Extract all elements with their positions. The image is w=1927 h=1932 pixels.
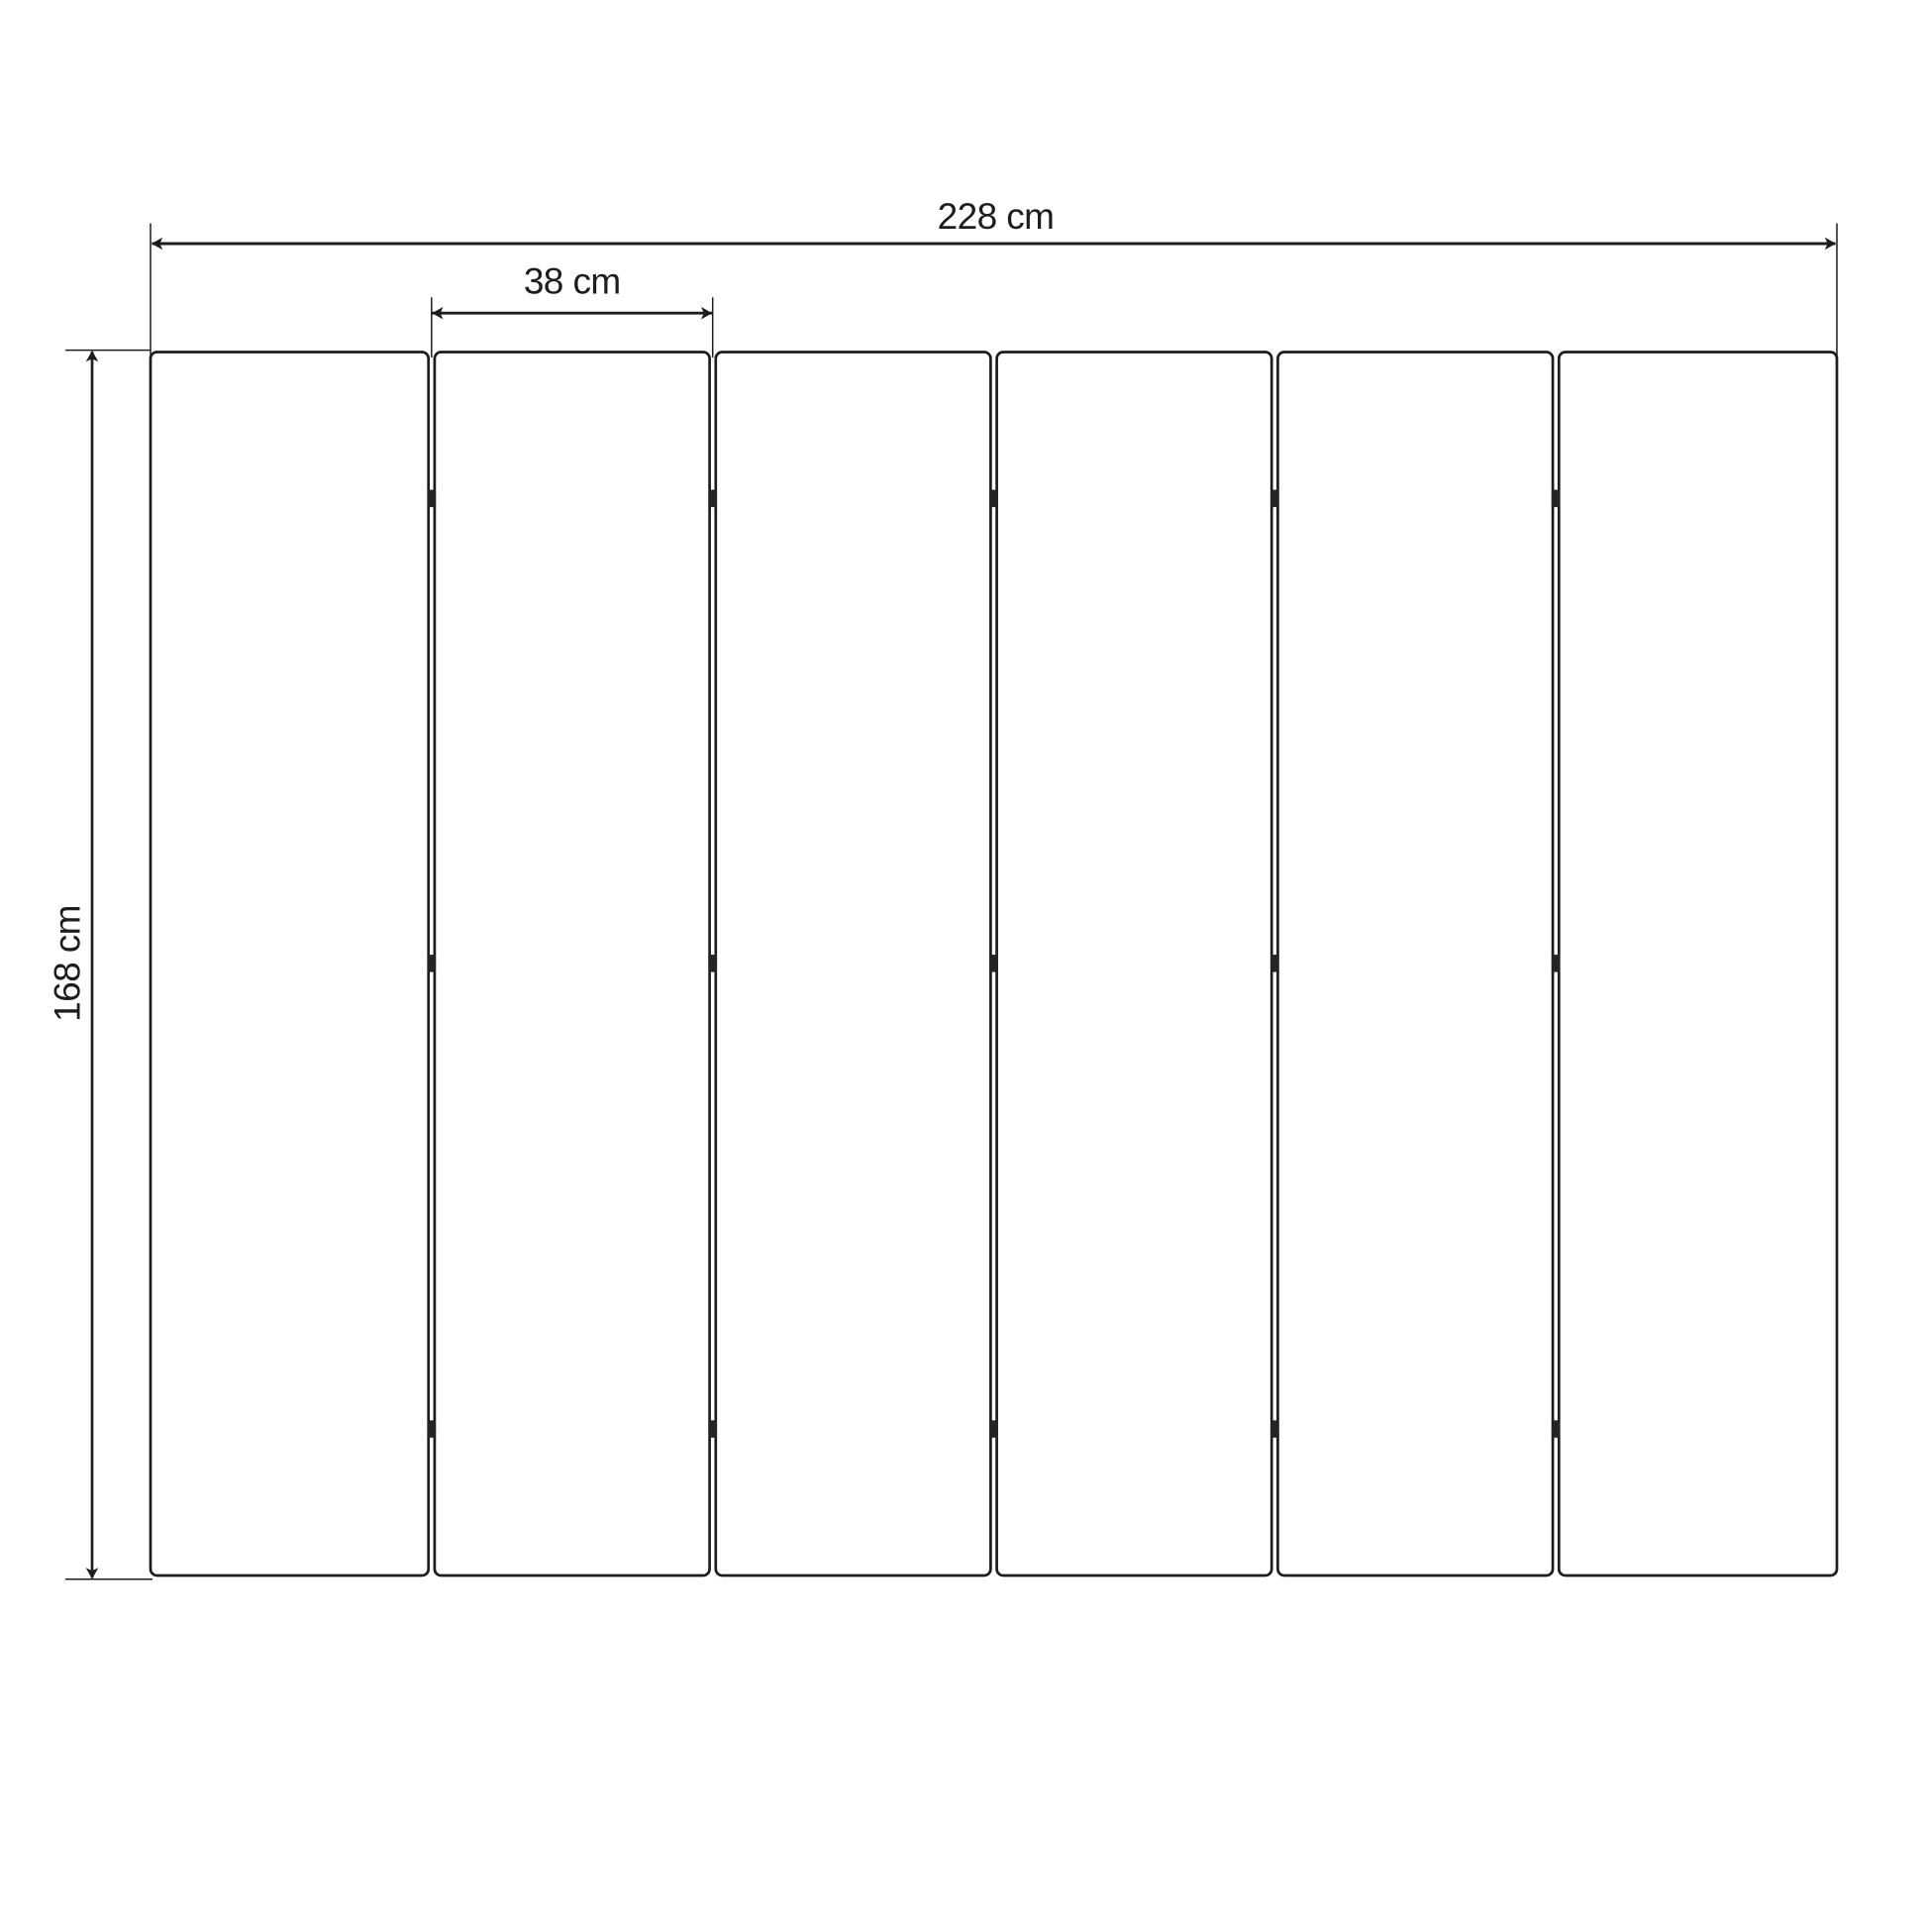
svg-text:228 cm: 228 cm — [938, 196, 1055, 237]
svg-text:38 cm: 38 cm — [524, 260, 621, 301]
svg-text:168 cm: 168 cm — [48, 905, 88, 1022]
